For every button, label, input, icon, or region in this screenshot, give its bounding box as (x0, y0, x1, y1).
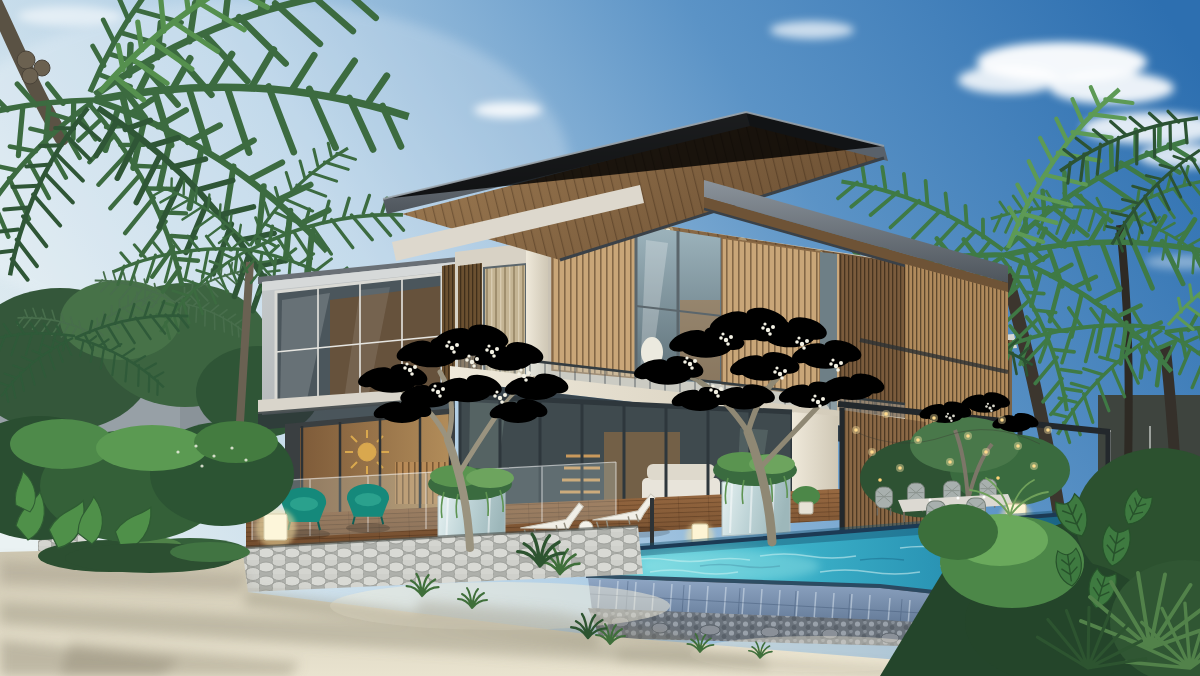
interior-sunburst-art (345, 430, 389, 474)
villa-render-canvas (0, 0, 1200, 676)
architectural-render (0, 0, 1200, 676)
